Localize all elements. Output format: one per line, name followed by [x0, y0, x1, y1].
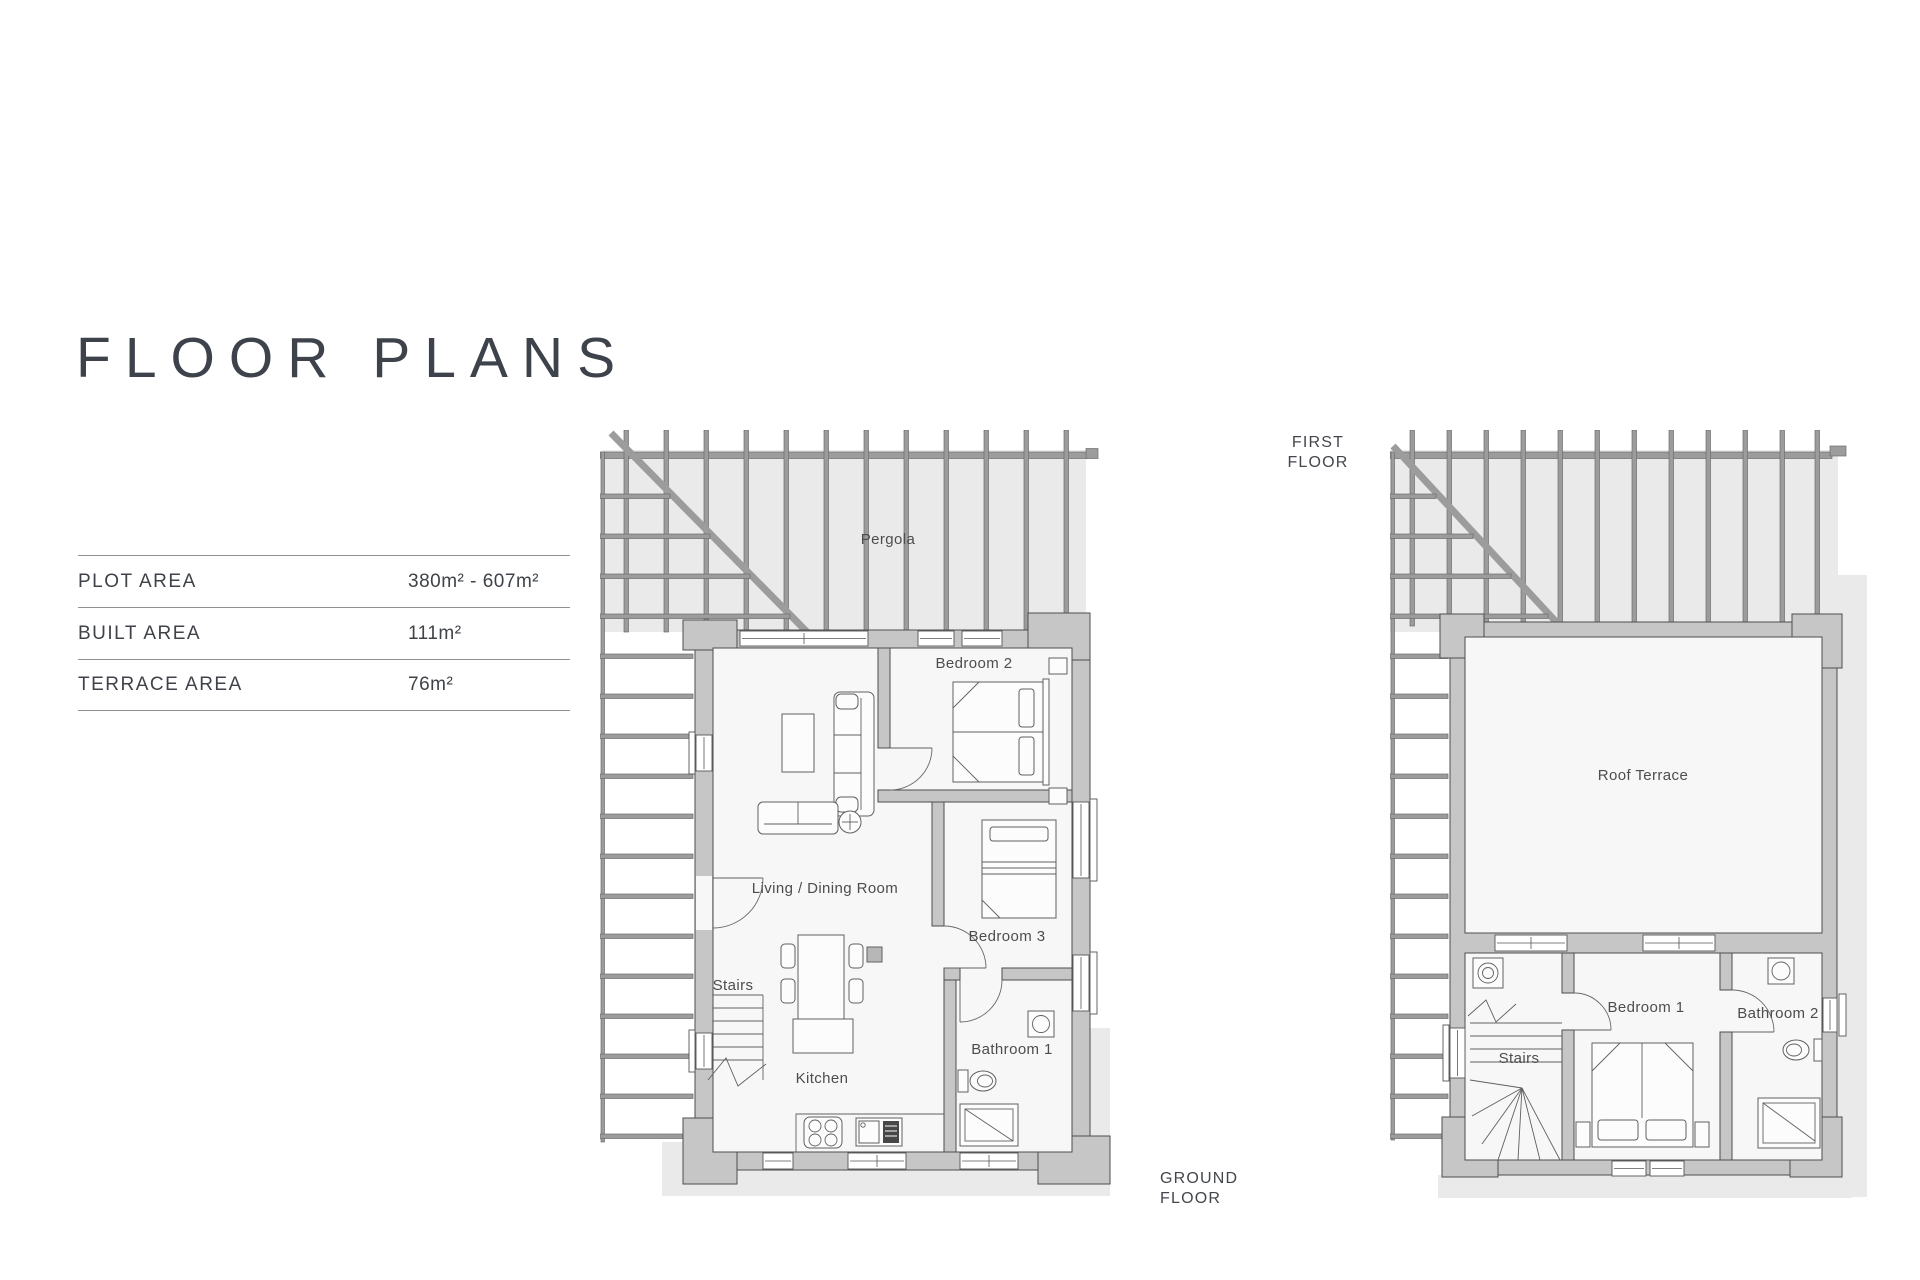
ground-floor-caption-line1: GROUND [1160, 1169, 1238, 1189]
pergola-label: Pergola [861, 531, 916, 548]
roof-terrace-label: Roof Terrace [1598, 767, 1688, 784]
first-floor-caption-line2: FLOOR [1279, 453, 1357, 473]
bedroom3-label: Bedroom 3 [969, 928, 1046, 945]
built-area-label: BUILT AREA [78, 623, 201, 645]
terrace-area-label: TERRACE AREA [78, 674, 243, 696]
table-row: BUILT AREA 111m² [78, 607, 570, 659]
area-table: PLOT AREA 380m² - 607m² BUILT AREA 111m²… [78, 555, 570, 711]
table-row: TERRACE AREA 76m² [78, 659, 570, 711]
bedroom1-label: Bedroom 1 [1608, 999, 1685, 1016]
plot-area-label: PLOT AREA [78, 571, 197, 593]
ground-floor-caption: GROUND FLOOR [1160, 1169, 1238, 1209]
first-floor-plan: Roof Terrace Bedroom 1 Bathroom 2 Stairs [1390, 430, 1920, 1230]
bedroom1-bed [1576, 1043, 1709, 1147]
bathroom2-label: Bathroom 2 [1737, 1005, 1819, 1022]
bedroom2-label: Bedroom 2 [936, 655, 1013, 672]
brochure-page: FLOOR PLANS PLOT AREA 380m² - 607m² BUIL… [0, 0, 1920, 1280]
first-floor-caption: FIRST FLOOR [1279, 433, 1357, 473]
page-title: FLOOR PLANS [76, 323, 629, 393]
bathroom1-label: Bathroom 1 [971, 1041, 1053, 1058]
table-row: PLOT AREA 380m² - 607m² [78, 555, 570, 607]
stairs-label: Stairs [713, 977, 754, 994]
ground-floor-plan: Pergola Bedroom 2 Living / Dining Room B… [600, 430, 1140, 1220]
built-area-value: 111m² [408, 623, 462, 645]
terrace-area-value: 76m² [408, 674, 453, 696]
first-stairs-label: Stairs [1499, 1050, 1540, 1067]
plot-area-value: 380m² - 607m² [408, 571, 539, 593]
ground-floor-caption-line2: FLOOR [1160, 1189, 1238, 1209]
first-floor-caption-line1: FIRST [1279, 433, 1357, 453]
living-dining-label: Living / Dining Room [752, 880, 898, 897]
bedroom3-bed [982, 820, 1056, 918]
kitchen-label: Kitchen [796, 1070, 849, 1087]
washing-machine [1473, 958, 1503, 988]
